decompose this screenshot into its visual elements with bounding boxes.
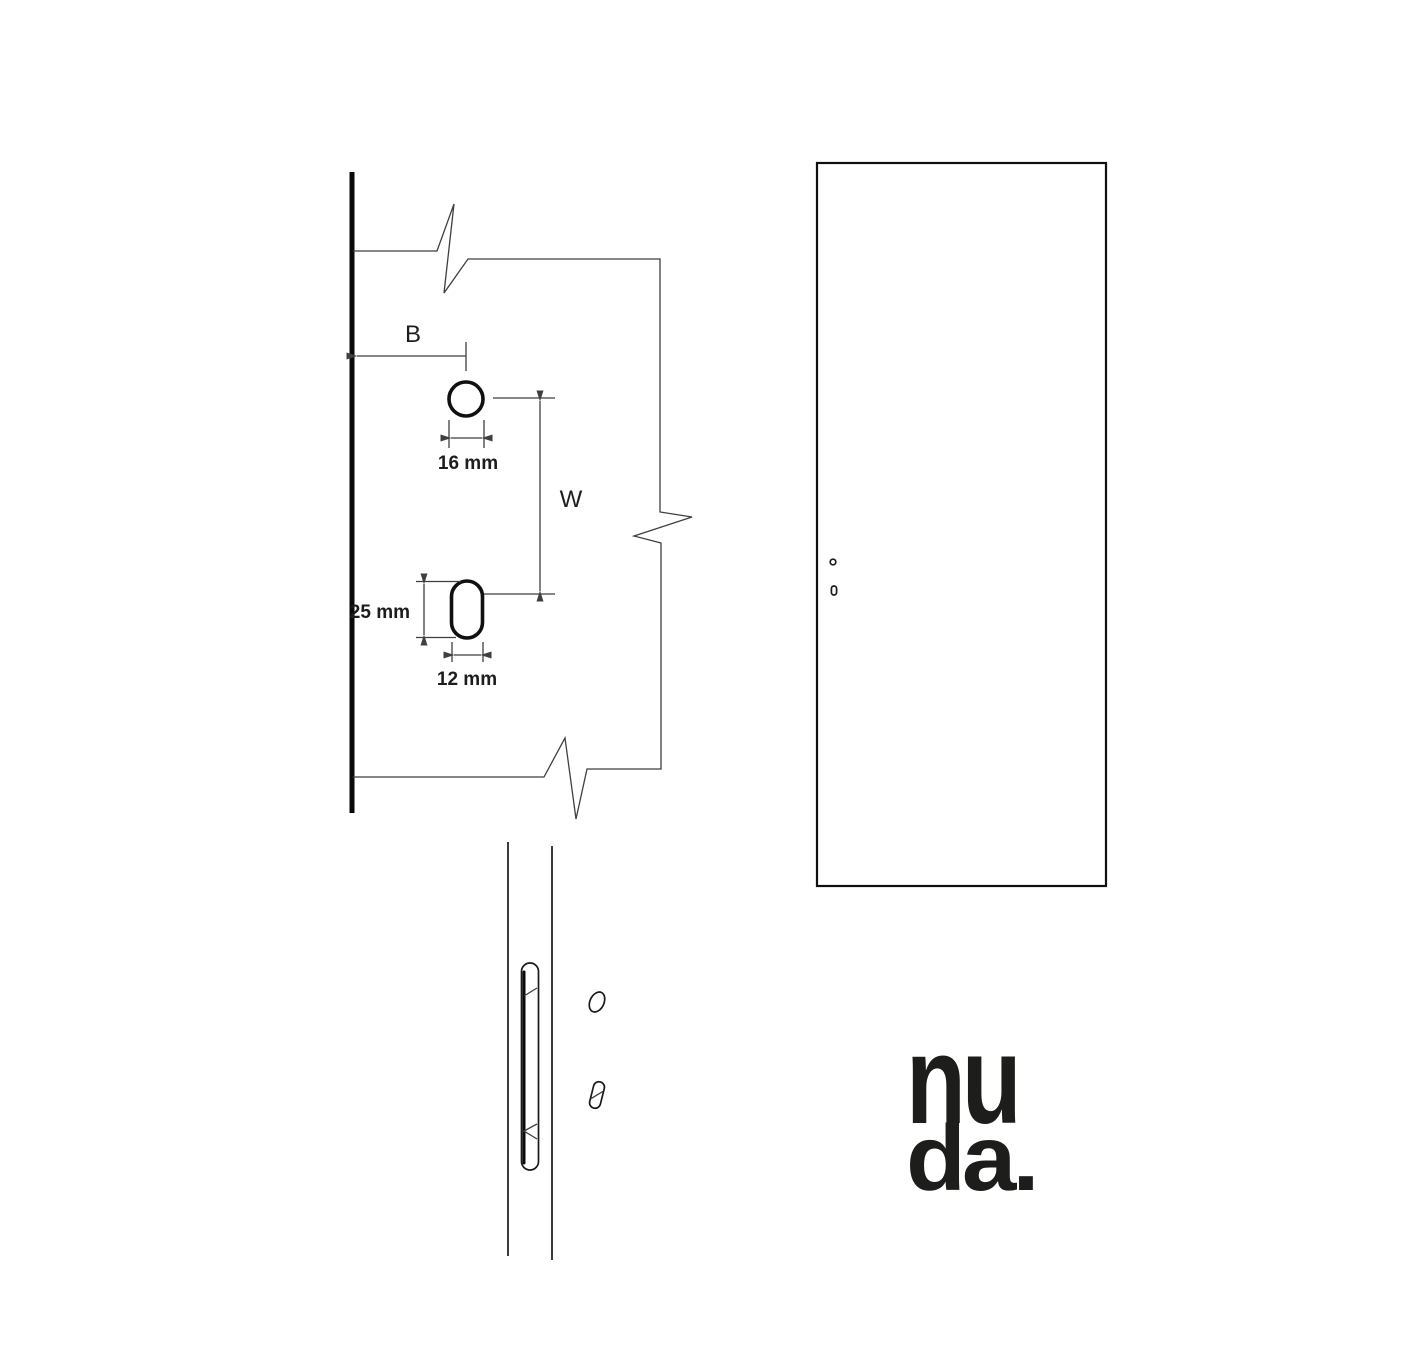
slot-12x25-oval	[452, 581, 483, 638]
logo-line-da: da.	[906, 1106, 1036, 1210]
dim-12-label: 12 mm	[437, 669, 497, 690]
front-view	[817, 163, 1106, 886]
drilling-template-drawing: B W 16 mm 25 mm	[0, 0, 1417, 1354]
hole-profile-oval	[586, 990, 608, 1015]
drawing-svg: B W 16 mm 25 mm	[0, 0, 1417, 1354]
dim-b-label: B	[405, 321, 421, 348]
door-leaf-rect	[817, 163, 1106, 886]
dim-w-label: W	[560, 486, 583, 513]
panel-break-outline	[353, 204, 692, 819]
section-view: B W 16 mm 25 mm	[350, 172, 692, 819]
dim-16-label: 16 mm	[438, 453, 498, 474]
brand-logo: nu da.	[906, 1009, 1036, 1210]
dim-25-label: 25 mm	[350, 602, 410, 623]
slot-bottom-facet-chevron	[524, 1124, 537, 1139]
edge-view	[508, 842, 608, 1260]
hole-16mm-circle	[449, 382, 483, 416]
slot-profile-pill	[588, 1081, 605, 1110]
slot-top-facet-line	[524, 988, 537, 996]
